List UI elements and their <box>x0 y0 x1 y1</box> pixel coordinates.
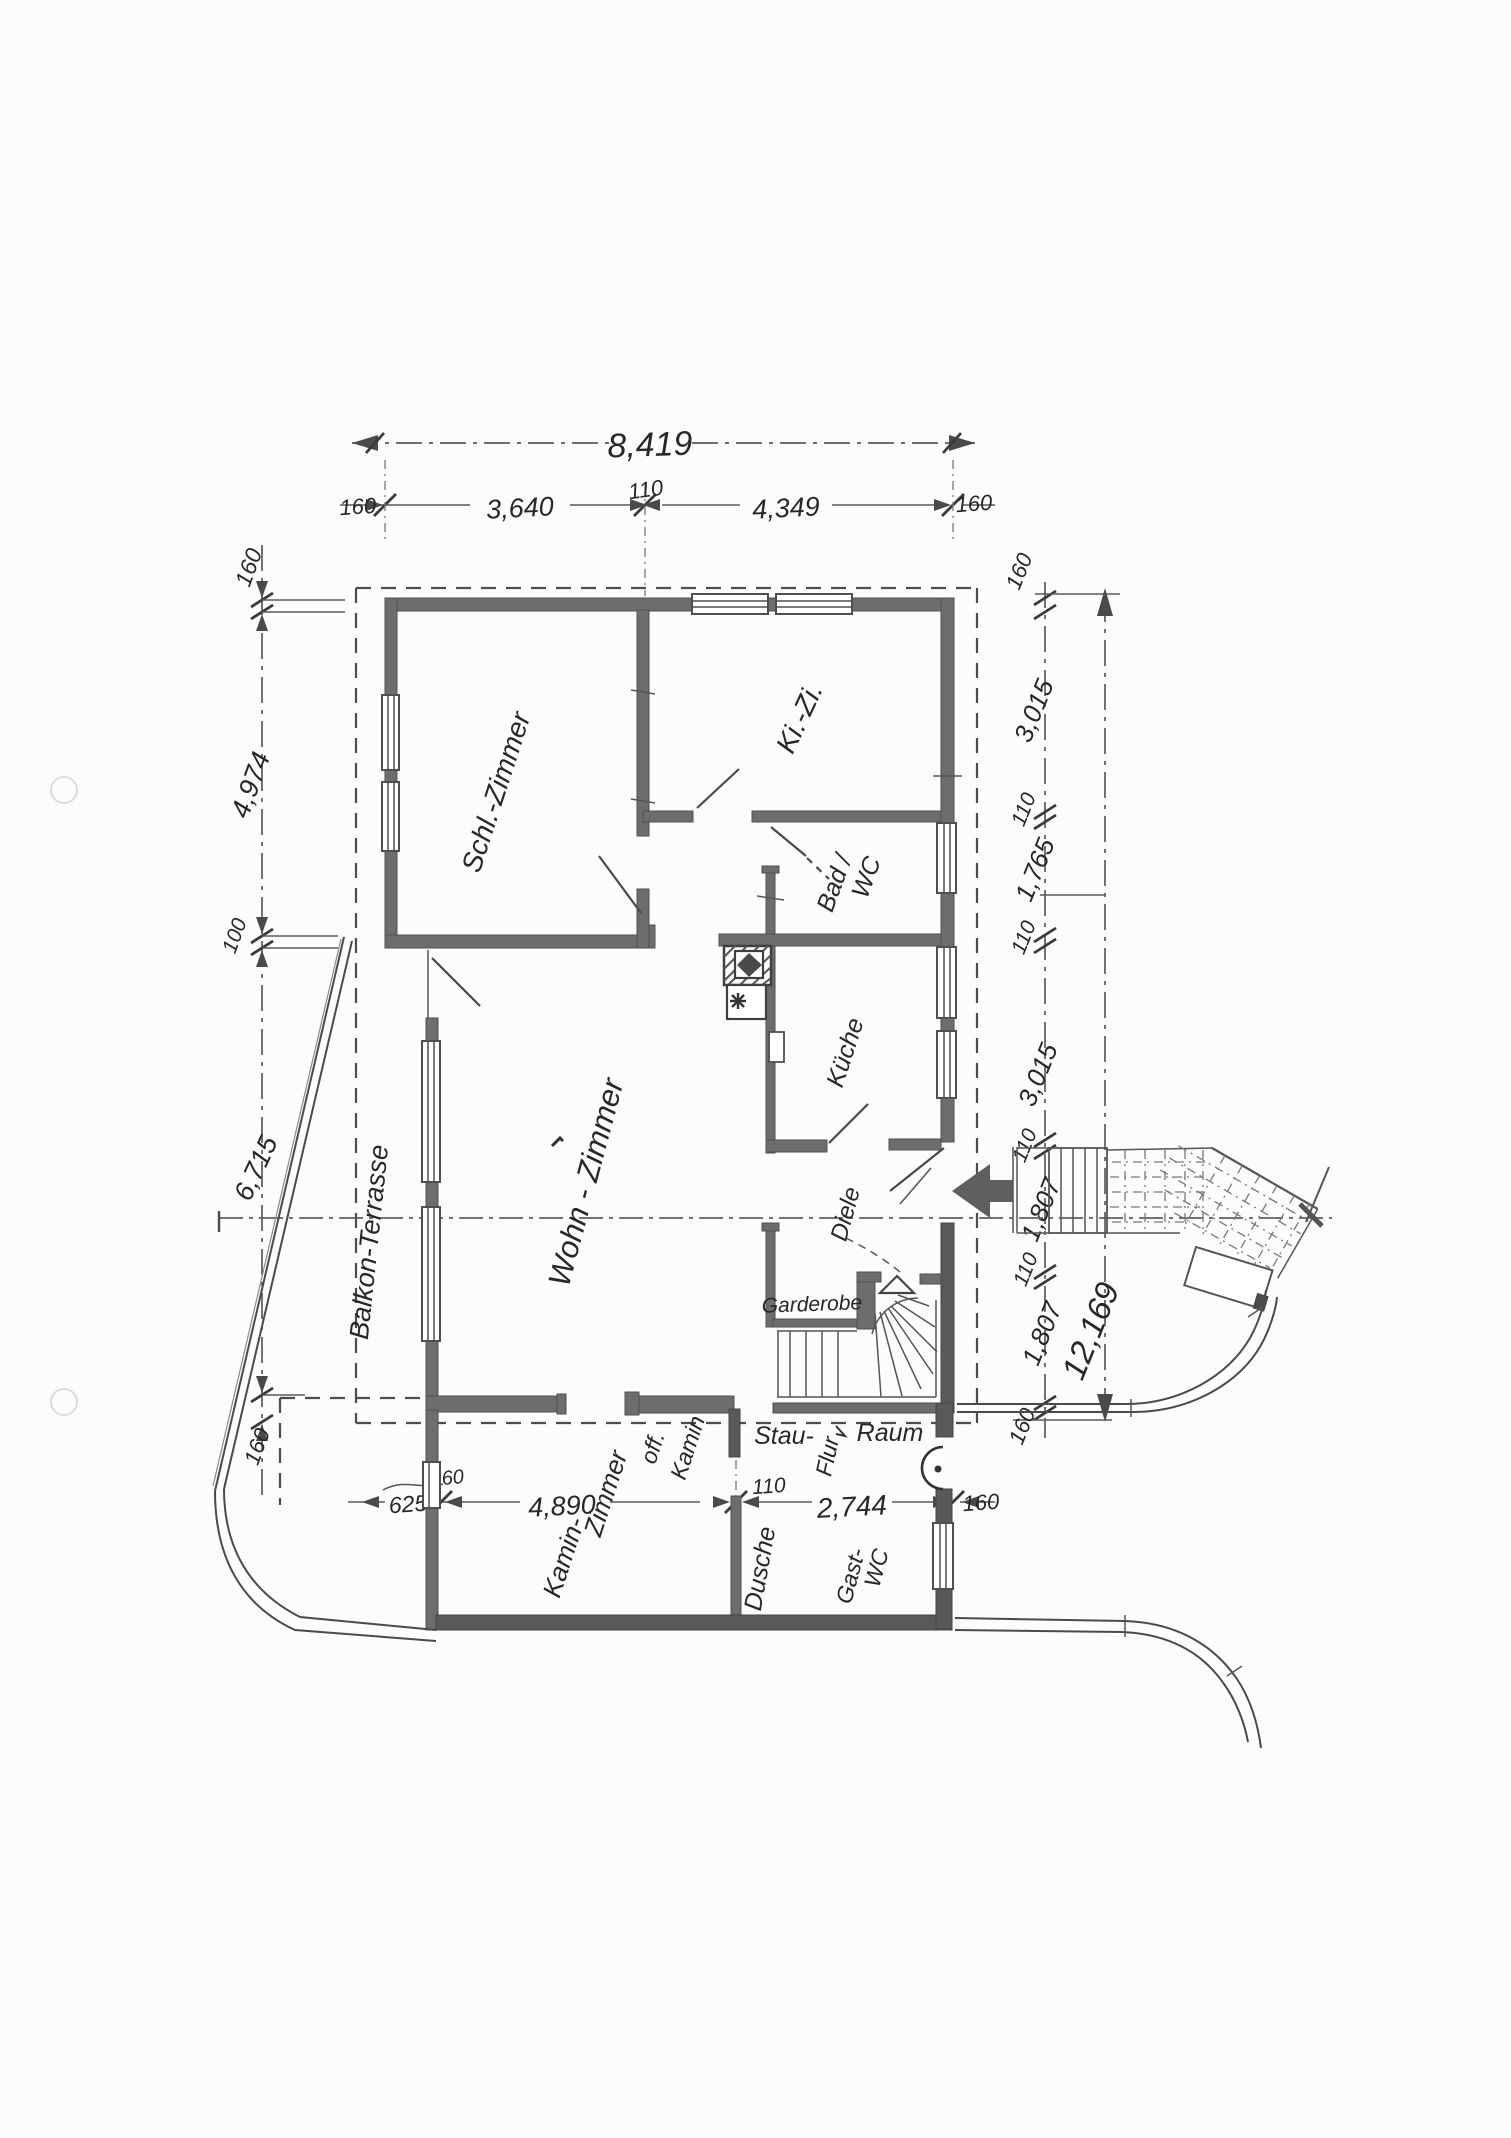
svg-text:2,744: 2,744 <box>815 1489 888 1524</box>
svg-text:Stau-: Stau- <box>754 1422 814 1450</box>
svg-text:4,349: 4,349 <box>751 491 820 524</box>
svg-text:160: 160 <box>955 490 994 518</box>
svg-text:110: 110 <box>627 475 666 505</box>
svg-text:160: 160 <box>962 1489 1001 1517</box>
svg-text:3,640: 3,640 <box>485 491 554 524</box>
svg-text:160: 160 <box>339 493 378 521</box>
svg-text:8,419: 8,419 <box>607 425 693 466</box>
svg-text:110: 110 <box>751 1474 786 1499</box>
svg-text:Raum: Raum <box>857 1419 924 1447</box>
svg-text:Garderobe: Garderobe <box>761 1291 862 1317</box>
svg-text:60: 60 <box>441 1466 465 1490</box>
